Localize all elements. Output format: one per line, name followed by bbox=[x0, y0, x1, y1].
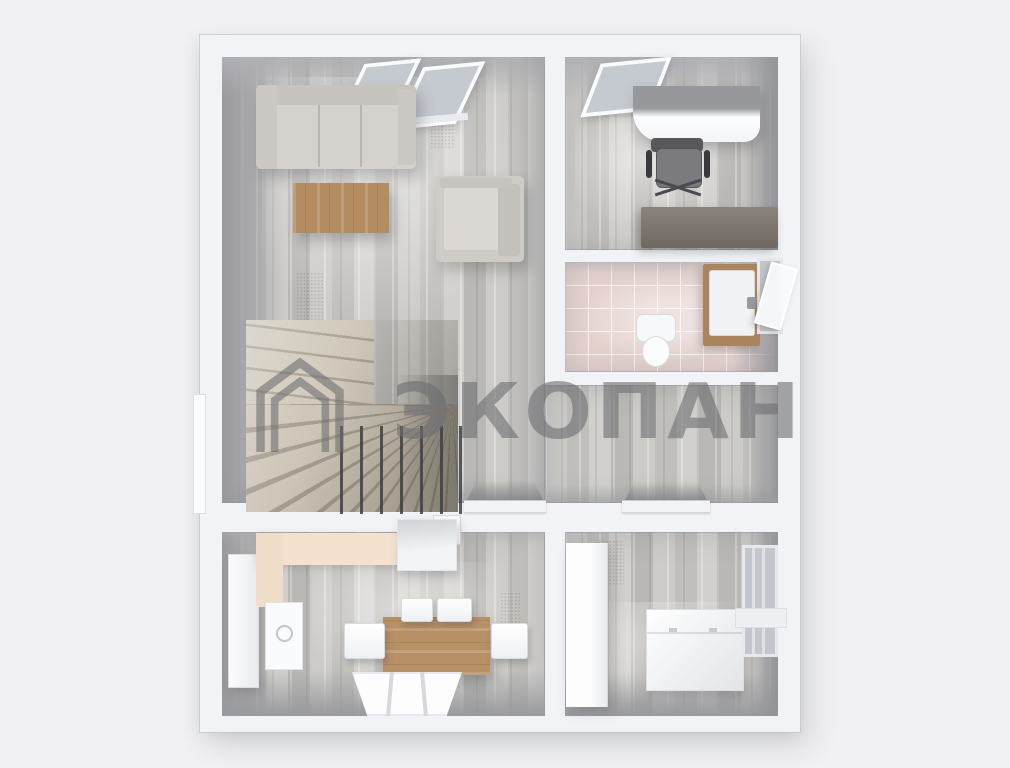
office-cabinet bbox=[641, 207, 778, 248]
living-right-shadow bbox=[519, 57, 545, 503]
railing-post bbox=[380, 426, 383, 514]
door-threshold-right bbox=[622, 500, 710, 513]
window-mullion bbox=[386, 672, 394, 716]
dining-chair-left bbox=[344, 623, 385, 659]
chest-lid-seam bbox=[647, 632, 743, 634]
railing-post bbox=[340, 426, 343, 514]
fridge bbox=[228, 554, 259, 688]
toilet bbox=[634, 312, 676, 368]
door-threshold-left bbox=[464, 500, 546, 513]
armchair-back bbox=[440, 178, 512, 188]
doorway-reveal-left bbox=[467, 481, 543, 500]
sink-drain bbox=[276, 625, 293, 642]
railing-post bbox=[420, 426, 423, 514]
corner-sofa bbox=[256, 85, 416, 169]
bedroom-window bbox=[742, 545, 778, 657]
sofa-arm-right bbox=[398, 89, 416, 165]
armchair-arm bbox=[498, 184, 520, 256]
bathroom-vanity bbox=[703, 264, 760, 346]
railing-post bbox=[400, 426, 403, 514]
sofa-arm-left bbox=[256, 85, 277, 169]
kitchen-bottom-window bbox=[352, 672, 462, 716]
sofa-backrest bbox=[256, 85, 416, 105]
kitchen-wall-cabinet bbox=[397, 519, 457, 571]
chair-armrest bbox=[646, 150, 652, 178]
hall-right-wall-face bbox=[748, 385, 778, 503]
wardrobe bbox=[566, 543, 608, 707]
kitchen-sink-unit bbox=[265, 602, 303, 670]
chest-hinge bbox=[669, 628, 677, 632]
sink-faucet bbox=[747, 297, 756, 309]
toilet-bowl bbox=[642, 336, 670, 367]
floorplan-render: ЭКОПАН bbox=[0, 0, 1010, 768]
dining-chair-top-2 bbox=[437, 598, 472, 622]
armchair bbox=[436, 176, 524, 262]
dining-chair-right bbox=[491, 623, 528, 659]
sofa-cushion-seam bbox=[318, 105, 320, 167]
railing-post bbox=[440, 426, 443, 514]
stair-railing bbox=[340, 426, 466, 514]
dining-table bbox=[383, 617, 490, 675]
dining-chair-top-1 bbox=[401, 598, 433, 622]
storage-chest bbox=[646, 609, 744, 691]
railing-post bbox=[459, 426, 462, 514]
left-wall-window-bump bbox=[193, 394, 206, 514]
window-mullion bbox=[420, 672, 428, 716]
railing-post bbox=[360, 426, 363, 514]
office-desk bbox=[633, 86, 760, 142]
coffee-table bbox=[293, 183, 389, 233]
bedroom-window-sill bbox=[735, 608, 787, 628]
office-chair bbox=[646, 138, 710, 196]
armchair-seat bbox=[444, 188, 500, 250]
chair-armrest bbox=[704, 150, 710, 178]
chest-hinge bbox=[709, 628, 717, 632]
sofa-cushion-seam bbox=[360, 105, 362, 167]
kitchen-counter-left bbox=[256, 533, 283, 607]
doorway-reveal-right bbox=[625, 481, 707, 500]
